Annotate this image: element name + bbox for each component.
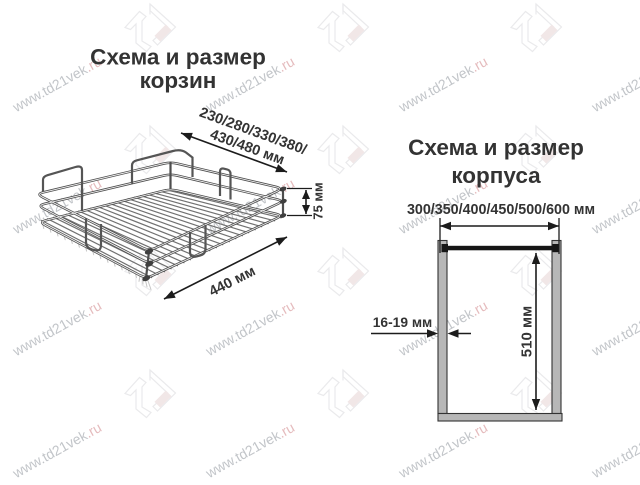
svg-text:300/350/400/450/500/600 мм: 300/350/400/450/500/600 мм bbox=[407, 202, 595, 218]
svg-text:корзин: корзин bbox=[140, 68, 217, 93]
svg-text:510 мм: 510 мм bbox=[519, 306, 536, 357]
svg-text:16-19 мм: 16-19 мм bbox=[373, 315, 433, 330]
svg-text:корпуса: корпуса bbox=[451, 163, 541, 188]
svg-text:Схема и размер: Схема и размер bbox=[408, 135, 584, 160]
svg-text:Схема и размер: Схема и размер bbox=[90, 45, 266, 70]
svg-text:75 мм: 75 мм bbox=[311, 182, 326, 219]
